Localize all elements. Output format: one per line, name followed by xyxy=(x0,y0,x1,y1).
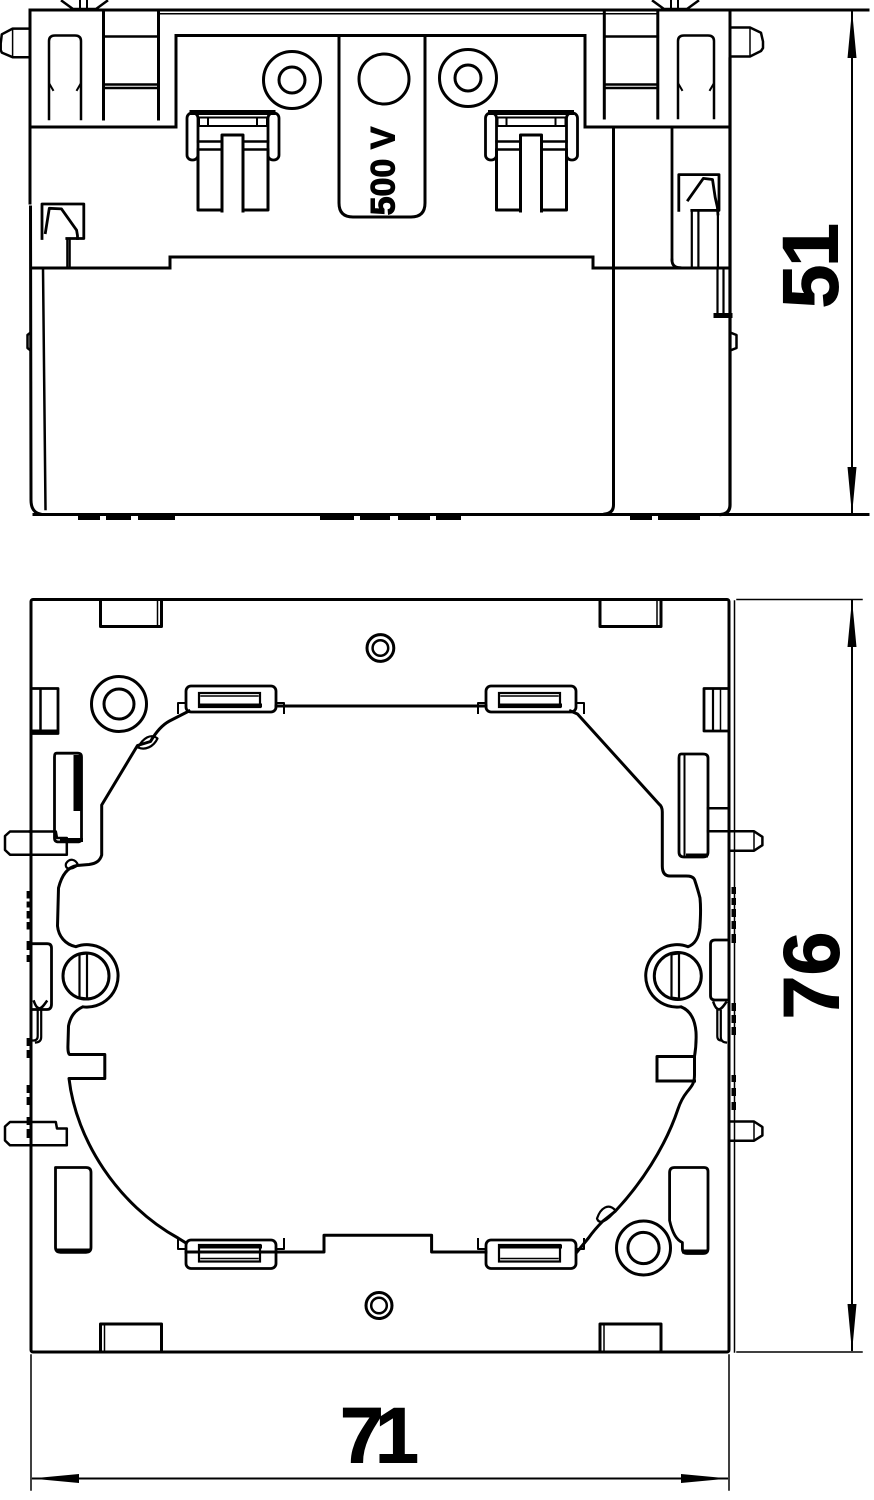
svg-text:500 V: 500 V xyxy=(365,126,403,215)
svg-text:1: 1 xyxy=(766,223,855,267)
svg-text:76: 76 xyxy=(767,932,856,1020)
svg-text:5: 5 xyxy=(766,265,855,309)
svg-text:1: 1 xyxy=(375,1391,419,1480)
